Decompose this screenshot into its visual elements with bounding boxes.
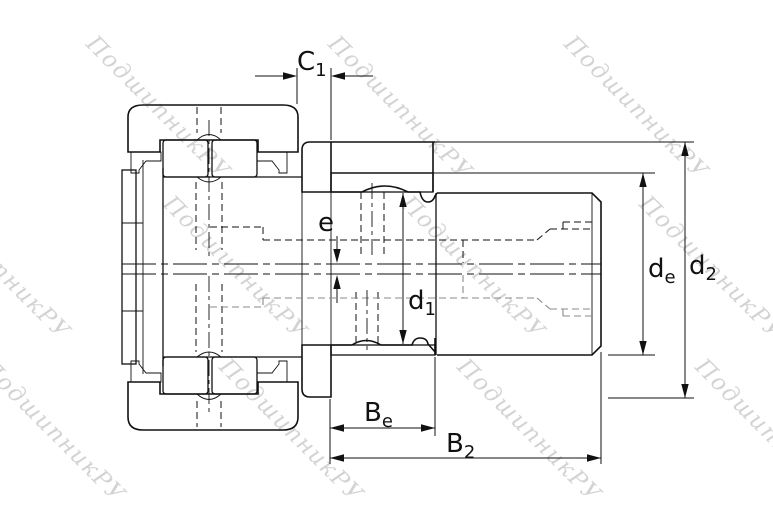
dim-label-be: Be: [364, 398, 393, 432]
dim-label-e: e: [318, 208, 334, 238]
watermark-text: ПодшипникРУ: [689, 353, 773, 509]
flange-top-section: [302, 142, 331, 192]
watermark-text: ПодшипникРУ: [213, 353, 369, 509]
watermark-text: ПодшипникРУ: [0, 353, 131, 509]
dim-label-c1: C1: [297, 47, 327, 81]
watermark-text: ПодшипникРУ: [322, 30, 478, 186]
watermark-text: ПодшипникРУ: [558, 30, 714, 186]
end-washer: [122, 160, 302, 374]
dim-label-de: de: [648, 254, 676, 288]
watermark-text: ПодшипникРУ: [0, 190, 76, 346]
collar-bottom-wall-section: [331, 345, 435, 355]
dim-label-b2: B2: [446, 429, 475, 463]
watermark-text: ПодшипникРУ: [157, 190, 313, 346]
dim-label-d1: d1: [408, 286, 436, 320]
technical-drawing: ПодшипникРУ ПодшипникРУ ПодшипникРУ Подш…: [0, 0, 773, 518]
collar-top-wall-section: [331, 173, 433, 192]
watermark-text: ПодшипникРУ: [451, 353, 607, 509]
centerlines: [122, 120, 601, 414]
dimension-e: e: [318, 208, 341, 303]
watermark-text: ПодшипникРУ: [395, 190, 551, 346]
dimension-be: Be: [330, 357, 435, 464]
technical-drawing-page: ПодшипникРУ ПодшипникРУ ПодшипникРУ Подш…: [0, 0, 773, 518]
flange-bottom-section: [302, 345, 331, 397]
